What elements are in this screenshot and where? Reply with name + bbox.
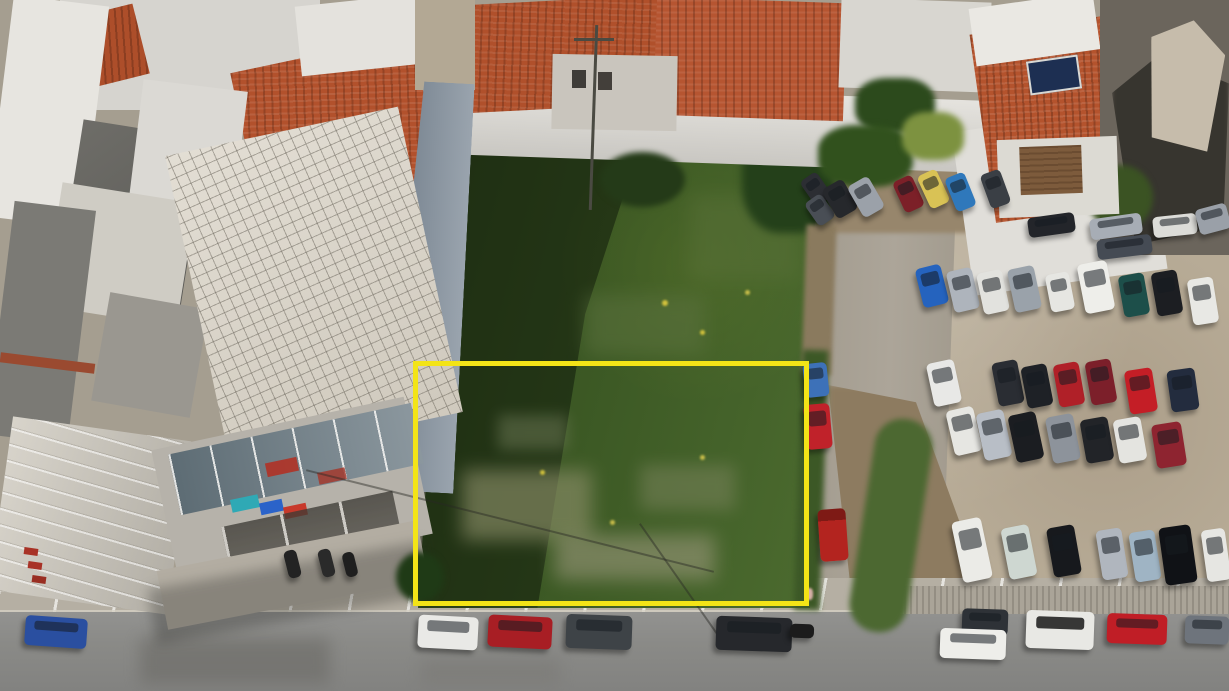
- parked-car-row4-7-glass: [1171, 374, 1192, 390]
- facade-window-1: [572, 70, 586, 88]
- parked-van-row3-glass: [1082, 268, 1106, 288]
- parked-car-row4-4-glass: [1057, 369, 1077, 386]
- tile-roof-center-2: [653, 0, 847, 121]
- utility-pole-arm: [574, 38, 614, 41]
- street-car-gray-edge: [1185, 615, 1229, 645]
- street-car-gray-edge-glass: [1192, 620, 1223, 630]
- street-car-blue-left-glass: [34, 620, 78, 633]
- parked-car-row1-1-glass: [804, 177, 821, 193]
- street-car-moving-white-glass: [950, 633, 997, 644]
- parked-car-row5-5-glass: [1085, 424, 1107, 441]
- street-car-blue-left: [24, 615, 88, 649]
- parked-car-row4-1-glass: [931, 366, 953, 384]
- parked-car-row2-2-glass: [1097, 217, 1134, 229]
- street-pickup-dark-glass: [969, 613, 1001, 622]
- parked-car-row3-3-glass: [981, 276, 1002, 293]
- light-grass-patch-1: [585, 295, 705, 355]
- street-car-moving-white: [939, 628, 1006, 660]
- street-stain-2: [420, 658, 560, 686]
- parked-car-row5-4-glass: [1050, 421, 1072, 439]
- parked-car-row5-1-glass: [951, 414, 973, 433]
- roadside-car-red-glass: [808, 410, 827, 426]
- parked-car-row3-6-glass: [1123, 279, 1143, 295]
- parked-car-row1-3-glass: [827, 185, 847, 203]
- flower-dot-1: [662, 300, 668, 306]
- street-car-red-right: [1106, 613, 1167, 645]
- parked-car-row4-5-glass: [1089, 366, 1109, 383]
- parked-car-row3-8-glass: [1192, 284, 1212, 301]
- parked-suv-row2-glass: [1105, 238, 1144, 249]
- parked-van-row6-glass: [957, 527, 982, 551]
- parked-car-row6-5-glass: [1205, 536, 1224, 555]
- parked-suv-row6-glass: [1164, 534, 1189, 555]
- street-car-red-glass: [498, 620, 543, 633]
- parked-car-row3-4-glass: [1012, 272, 1033, 290]
- parked-car-row2-4-glass: [1200, 208, 1224, 222]
- parked-car-row1-4-glass: [853, 182, 873, 200]
- flower-dot-2: [700, 330, 705, 335]
- parked-car-row6-3-glass: [1100, 536, 1120, 555]
- solar-panel: [1026, 55, 1082, 96]
- street-wet-stain: [140, 638, 330, 684]
- parked-car-row5-6-glass: [1118, 424, 1140, 441]
- street-suv-gray: [565, 614, 632, 650]
- street-motorbike: [790, 624, 814, 639]
- parked-car-row4-2-glass: [996, 367, 1017, 384]
- parked-car-row3-1-glass: [920, 271, 941, 288]
- parked-car-row6-4-glass: [1133, 538, 1153, 557]
- courtyard-top-gap: [415, 0, 475, 90]
- parked-car-row6-2-glass: [1051, 533, 1073, 552]
- roadside-car-blue-glass: [806, 368, 824, 381]
- street-car-white-glass: [427, 620, 469, 633]
- street-car-red: [487, 614, 553, 649]
- parked-car-row5-7-glass: [1156, 429, 1179, 446]
- parked-car-row2-1-glass: [1034, 216, 1067, 227]
- facade-window-2: [598, 72, 612, 90]
- parked-car-row1-5-glass: [897, 180, 915, 196]
- bush-yellow-green: [902, 112, 964, 160]
- parked-car-row4-7: [1166, 367, 1200, 412]
- parked-car-row4-6-glass: [1129, 375, 1151, 392]
- parked-car-row5-2-glass: [981, 417, 1003, 436]
- street-car-red-right-glass: [1116, 618, 1158, 629]
- white-roof-with-units: [295, 0, 427, 76]
- street-suv-gray-glass: [576, 620, 623, 632]
- yellow-plot-boundary: [413, 361, 809, 606]
- parked-car-row1-7-glass: [949, 178, 967, 194]
- street-car-black-glass: [727, 622, 781, 635]
- parked-car-row1-8-glass: [984, 175, 1002, 191]
- bush-center-top: [600, 152, 685, 207]
- street-suv-white-glass: [1036, 616, 1084, 630]
- terrace-left-mid: [91, 292, 209, 418]
- parked-car-row3-5-glass: [1049, 278, 1068, 293]
- parked-car-row1-6-glass: [922, 175, 940, 192]
- flower-dot-3: [745, 290, 750, 295]
- parked-car-row3-7-glass: [1155, 277, 1175, 294]
- stone-facade-center: [551, 54, 677, 131]
- street-car-black: [715, 616, 792, 653]
- parked-car-row5-3-glass: [1013, 419, 1035, 438]
- parked-car-row4-3-glass: [1025, 370, 1045, 387]
- parked-car-row6-1-glass: [1006, 533, 1028, 553]
- roadside-truck-red: [817, 508, 849, 562]
- street-car-white: [417, 614, 479, 650]
- aerial-photo: [0, 0, 1229, 691]
- parked-car-row1-2-glass: [809, 198, 826, 213]
- parked-car-row2-3-glass: [1159, 217, 1190, 227]
- street-suv-white: [1025, 610, 1094, 650]
- pergola-brown: [1019, 145, 1083, 195]
- parked-car-row3-2-glass: [951, 274, 972, 291]
